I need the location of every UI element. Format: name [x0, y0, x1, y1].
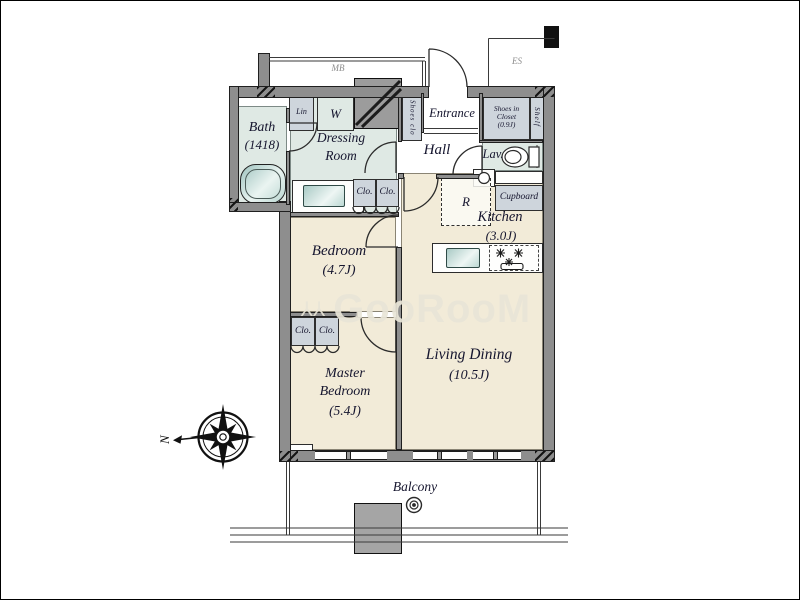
hatch-bottom-left	[280, 451, 298, 461]
balcony-partition	[354, 503, 402, 554]
living-size: (10.5J)	[399, 369, 539, 384]
drain-outer	[407, 498, 422, 513]
wall-bath-bottom	[229, 202, 291, 212]
hall-label: Hall	[415, 143, 459, 159]
compass-n-label: N	[157, 434, 172, 445]
hatch-top-left	[257, 87, 275, 97]
master-name-1: Master	[305, 367, 385, 382]
clo-label-1: Clo.	[356, 188, 372, 198]
watermark-text: GooRooM	[333, 287, 531, 332]
living-name: Living Dining	[399, 347, 539, 363]
compass-star-diagonal	[196, 410, 250, 464]
entrance-label: Entrance	[424, 107, 480, 120]
compass-north-arrow	[179, 438, 199, 440]
kitchen-size: (3.0J)	[462, 229, 540, 243]
kitchen-sink	[446, 248, 480, 268]
window-mullion-2	[437, 451, 442, 460]
fridge-label: R	[462, 195, 470, 209]
compass-hub-inner	[220, 434, 226, 440]
wall-lav-top	[479, 140, 543, 143]
wall-dressing-bottom	[290, 212, 399, 217]
shelf-label: Shelf	[533, 107, 541, 127]
watermark: ⅄⅄ GooRooM	[291, 283, 541, 335]
shoes-in-closet: Shoes in Closet (0.9J)	[483, 94, 530, 140]
compass-ring-inner	[203, 417, 243, 457]
compass: N	[157, 404, 256, 470]
cupboard-label: Cupboard	[500, 193, 538, 203]
wall-hall-stub	[398, 173, 404, 179]
bathtub	[240, 164, 286, 204]
dressing-name-1: Dressing	[301, 131, 381, 145]
closet-bedroom-right: Clo.	[376, 179, 399, 207]
washer-box: W	[317, 96, 354, 131]
bedroom-size: (4.7J)	[297, 264, 381, 279]
wall-hall-kitchen	[436, 174, 482, 179]
bathtub-inner	[245, 169, 281, 199]
watermark-icon: ⅄⅄	[301, 297, 325, 322]
window-mullion-1	[346, 451, 351, 460]
linen-closet: Lin	[289, 94, 314, 131]
ps-black-box	[544, 26, 559, 48]
floor-plan: Lin W Shoes clo Shoes in Closet (0.9J) S…	[0, 0, 800, 600]
window-mullion-3	[493, 451, 498, 460]
kitchen-name: Kitchen	[460, 210, 540, 225]
compass-arrowhead	[173, 435, 182, 444]
clo-label-2: Clo.	[379, 188, 395, 198]
dressing-name-2: Room	[301, 149, 381, 163]
washbasin-sink	[303, 185, 345, 207]
lav-counter	[495, 171, 543, 184]
wall-left-lower	[279, 201, 291, 462]
wall-bath-dressing-bottom	[286, 151, 290, 205]
balcony-drain	[407, 498, 422, 513]
wall-dressing-hall-top	[398, 97, 402, 142]
shoes-in-closet-text: Shoes in Closet (0.9J)	[494, 105, 519, 129]
cupboard: Cupboard	[495, 185, 543, 211]
shoes-clo-label: Shoes clo	[408, 100, 415, 136]
compass-ring-outer	[199, 413, 248, 462]
closet-bedroom-left: Clo.	[353, 179, 376, 207]
mb-label: MB	[318, 64, 358, 73]
bedroom-name: Bedroom	[297, 244, 381, 260]
master-name-2: Bedroom	[305, 385, 385, 400]
shoes-closet-strip: Shoes clo	[402, 95, 422, 141]
entrance-door-arc	[429, 49, 467, 87]
lav-label: Lav.	[479, 148, 507, 161]
balcony-label: Balcony	[376, 480, 454, 494]
compass-star-cardinal	[190, 404, 256, 470]
hatch-top-right	[535, 87, 554, 97]
drain-mid	[410, 501, 418, 509]
hatch-bath-corner	[230, 198, 238, 211]
compass-hub	[216, 430, 230, 444]
es-label: ES	[497, 57, 537, 66]
linen-label: Lin	[296, 108, 307, 116]
wall-right	[543, 86, 555, 462]
drain-center	[413, 504, 416, 507]
bath-name: Bath	[232, 121, 292, 136]
master-size: (5.4J)	[305, 404, 385, 418]
washer-label: W	[330, 107, 341, 121]
bath-size: (1418)	[230, 138, 294, 152]
entrance-step-lines	[424, 129, 478, 134]
hatch-bottom-right	[535, 451, 554, 461]
shelf-strip: Shelf	[530, 94, 544, 140]
window-master	[315, 451, 387, 460]
sic-line3: (0.9J)	[494, 121, 519, 129]
balcony-side-lines	[287, 462, 541, 535]
stove	[489, 245, 539, 271]
